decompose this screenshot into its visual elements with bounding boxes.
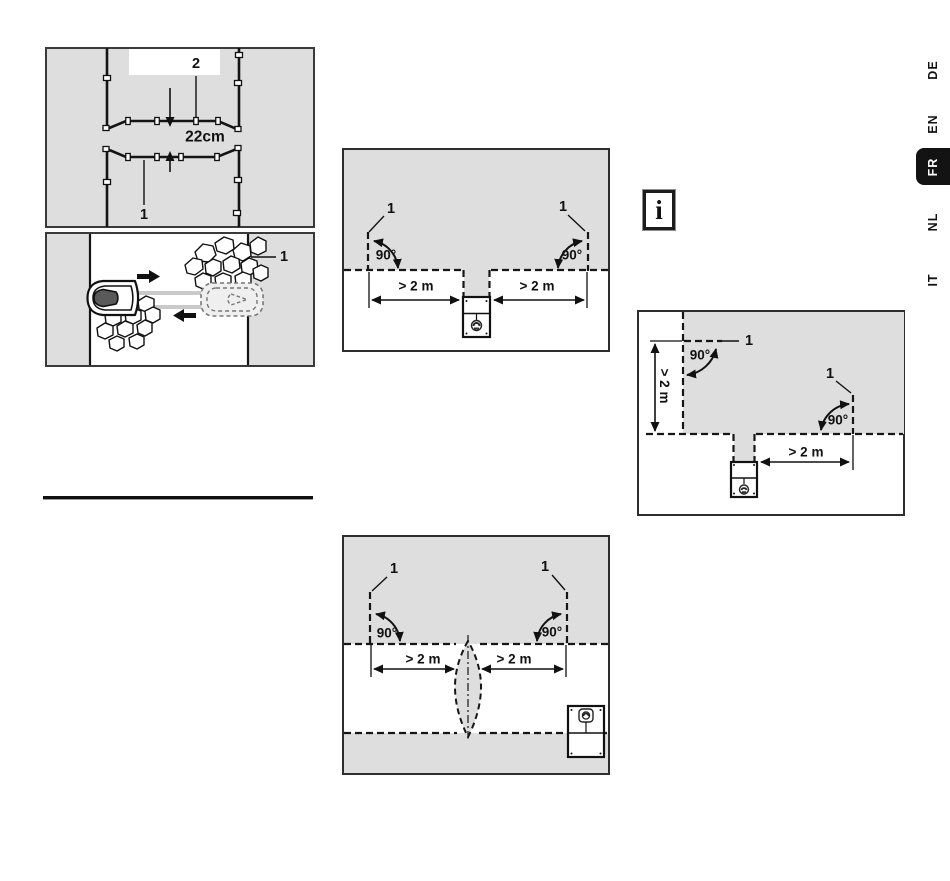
- panel-top: [46, 48, 314, 227]
- wire-label-1-right: 1: [826, 367, 834, 382]
- angle-label-right: 90°: [562, 248, 582, 262]
- angle-label-right: 90°: [828, 413, 848, 427]
- docking-station: [568, 706, 604, 757]
- figure-corner-90deg-side-dock: 1 1 90° 90° > 2 m > 2 m: [637, 310, 905, 516]
- wire-label-1-right: 1: [541, 560, 549, 575]
- lang-tab-fr: FR: [927, 157, 940, 176]
- distance-label-right: > 2 m: [520, 279, 555, 293]
- wire-label-2: 2: [192, 57, 200, 72]
- distance-label-vertical: > 2 m: [657, 369, 671, 404]
- info-icon: i: [643, 190, 675, 230]
- lang-tab-en: EN: [927, 114, 940, 133]
- figure-corridor-90deg-path: 1 1 90° 90° > 2 m > 2 m: [342, 535, 610, 775]
- distance-label-right: > 2 m: [497, 652, 532, 666]
- wire-label-1-top: 1: [745, 334, 753, 349]
- wire-label-1-top: 1: [140, 208, 148, 223]
- section-divider: [43, 496, 313, 500]
- figure-corridor-90deg-center-dock: 1 1 90° 90° > 2 m > 2 m: [342, 148, 610, 352]
- wire-label-1-left: 1: [390, 562, 398, 577]
- robot-mower-solid: [88, 281, 139, 315]
- robot-mower-dashed: [201, 283, 263, 316]
- manual-page: 2 22cm 1 1: [0, 0, 950, 881]
- wire-label-1-left: 1: [387, 202, 395, 217]
- wire-label-1-right: 1: [559, 200, 567, 215]
- gap-label-22cm: 22cm: [185, 129, 225, 145]
- panel-bottom: [46, 233, 314, 366]
- angle-label-right: 90°: [542, 625, 562, 639]
- distance-label-horizontal: > 2 m: [789, 445, 824, 459]
- angle-label-left: 90°: [376, 248, 396, 262]
- angle-label-top: 90°: [690, 348, 710, 362]
- docking-station: [463, 297, 490, 337]
- docking-station: [731, 462, 757, 497]
- angle-label-left: 90°: [377, 626, 397, 640]
- info-icon-glyph: i: [655, 195, 663, 226]
- lang-tab-fr-active: FR: [916, 148, 950, 185]
- distance-label-left: > 2 m: [399, 279, 434, 293]
- wire-label-1-bottom: 1: [280, 250, 288, 265]
- lang-tab-nl: NL: [927, 213, 940, 232]
- lang-tab-de: DE: [927, 60, 940, 79]
- guide-bar: [137, 291, 205, 295]
- figure-narrow-passage: 2 22cm 1 1: [45, 47, 315, 368]
- figure3-graphic: [637, 310, 905, 516]
- figure-narrow-passage-graphic: [45, 47, 315, 368]
- lang-tab-it: IT: [927, 273, 940, 286]
- distance-label-left: > 2 m: [406, 652, 441, 666]
- figure4-graphic: [342, 535, 610, 775]
